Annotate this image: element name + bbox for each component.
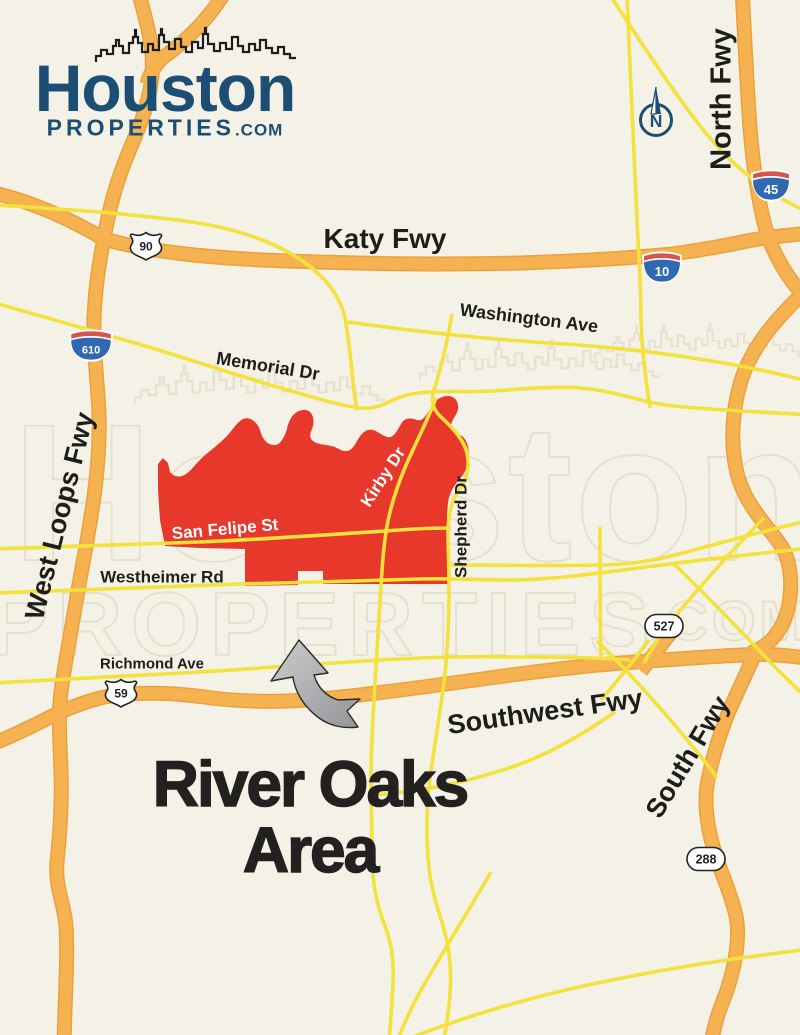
compass: N xyxy=(641,87,672,136)
svg-text:59: 59 xyxy=(114,687,128,701)
svg-text:10: 10 xyxy=(655,264,669,279)
shield-i610: 610 xyxy=(69,330,113,362)
road-washington xyxy=(348,322,800,382)
river-oaks-map: Houston PROPERTIES .COM xyxy=(0,0,800,1035)
road-connector xyxy=(373,712,615,795)
road-waugh xyxy=(0,205,357,410)
compass-needle-icon xyxy=(651,87,656,114)
shield-288: 288 xyxy=(687,848,725,871)
map-canvas: Houston PROPERTIES .COM xyxy=(0,0,800,1035)
shield-527: 527 xyxy=(645,615,683,638)
svg-text:527: 527 xyxy=(654,620,675,634)
shield-i10: 10 xyxy=(642,252,682,284)
svg-text:610: 610 xyxy=(82,345,100,357)
svg-text:90: 90 xyxy=(139,240,153,254)
compass-n-label: N xyxy=(650,111,663,131)
compass-needle-icon xyxy=(656,87,661,114)
svg-text:288: 288 xyxy=(696,853,717,867)
road-bottom-cross xyxy=(397,872,491,1035)
svg-text:45: 45 xyxy=(764,182,778,197)
road-montrose xyxy=(600,527,601,658)
